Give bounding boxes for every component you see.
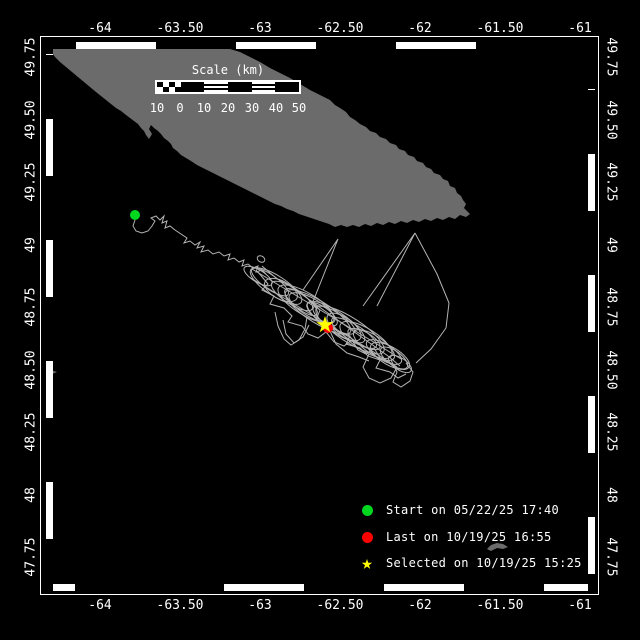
axis-label-right-lat: 48 <box>604 487 619 503</box>
scalebar-label: 30 <box>245 101 259 115</box>
scalebar-segment <box>228 82 252 92</box>
axis-label-left-lat: 49.75 <box>24 37 39 76</box>
axis-label-right-lat: 49 <box>604 237 619 253</box>
axis-label-left-lat: 48 <box>24 487 39 503</box>
axis-label-right-lat: 49.50 <box>604 100 619 139</box>
axis-label-bottom-lon: -61.50 <box>477 598 524 613</box>
map-frame-top <box>46 42 595 49</box>
axis-label-top-lon: -61 <box>568 21 591 36</box>
axis-label-right-lat: 48.50 <box>604 350 619 389</box>
axis-label-right-lat: 49.75 <box>604 37 619 76</box>
axis-label-top-lon: -62.50 <box>317 21 364 36</box>
axis-label-top-lon: -61.50 <box>477 21 524 36</box>
axis-label-bottom-lon: -62.50 <box>317 598 364 613</box>
map-frame-right <box>588 42 595 591</box>
scalebar-label: 10 <box>150 101 164 115</box>
legend-row-start: Start on 05/22/25 17:40 <box>360 502 559 518</box>
legend-row-last: Last on 10/19/25 16:55 <box>360 529 552 545</box>
legend-row-selected: ★ Selected on 10/19/25 15:25 <box>360 555 582 571</box>
axis-label-left-lat: 47.75 <box>24 537 39 576</box>
axis-label-top-lon: -64 <box>88 21 111 36</box>
scalebar-label: 50 <box>292 101 306 115</box>
axis-label-left-lat: 48.50 <box>24 350 39 389</box>
selected-star-icon: ★ <box>360 558 374 569</box>
legend-last-label: Last on 10/19/25 16:55 <box>386 530 552 544</box>
axis-label-bottom-lon: -62 <box>408 598 431 613</box>
axis-label-bottom-lon: -64 <box>88 598 111 613</box>
last-dot-icon <box>360 532 374 543</box>
axis-label-top-lon: -63 <box>248 21 271 36</box>
scalebar-label: 20 <box>221 101 235 115</box>
axis-label-left-lat: 48.25 <box>24 412 39 451</box>
axis-label-top-lon: -62 <box>408 21 431 36</box>
map-frame-left <box>46 42 53 591</box>
axis-label-top-lon: -63.50 <box>157 21 204 36</box>
axis-label-right-lat: 49.25 <box>604 162 619 201</box>
scalebar-segment-checkered <box>157 82 181 92</box>
map-frame-bottom <box>46 584 595 591</box>
start-dot-icon <box>360 505 374 516</box>
axis-label-left-lat: 48.75 <box>24 287 39 326</box>
axis-label-left-lat: 49 <box>24 237 39 253</box>
axis-label-right-lat: 47.75 <box>604 537 619 576</box>
scalebar <box>155 80 301 94</box>
axis-label-left-lat: 49.50 <box>24 100 39 139</box>
axis-label-right-lat: 48.75 <box>604 287 619 326</box>
scalebar-segment <box>252 82 276 92</box>
tracking-map: -64 -63.50 -63 -62.50 -62 -61.50 -61 -64… <box>0 0 640 640</box>
scalebar-segment <box>275 82 299 92</box>
scalebar-title: Scale (km) <box>192 63 264 77</box>
scalebar-label: 0 <box>176 101 183 115</box>
axis-label-left-lat: 49.25 <box>24 162 39 201</box>
legend-start-label: Start on 05/22/25 17:40 <box>386 503 559 517</box>
axis-label-right-lat: 48.25 <box>604 412 619 451</box>
axis-label-bottom-lon: -61 <box>568 598 591 613</box>
scalebar-segment <box>181 82 205 92</box>
scalebar-label: 10 <box>197 101 211 115</box>
scalebar-segment <box>204 82 228 92</box>
scalebar-label: 40 <box>269 101 283 115</box>
axis-label-bottom-lon: -63 <box>248 598 271 613</box>
legend-selected-label: Selected on 10/19/25 15:25 <box>386 556 582 570</box>
axis-label-bottom-lon: -63.50 <box>157 598 204 613</box>
